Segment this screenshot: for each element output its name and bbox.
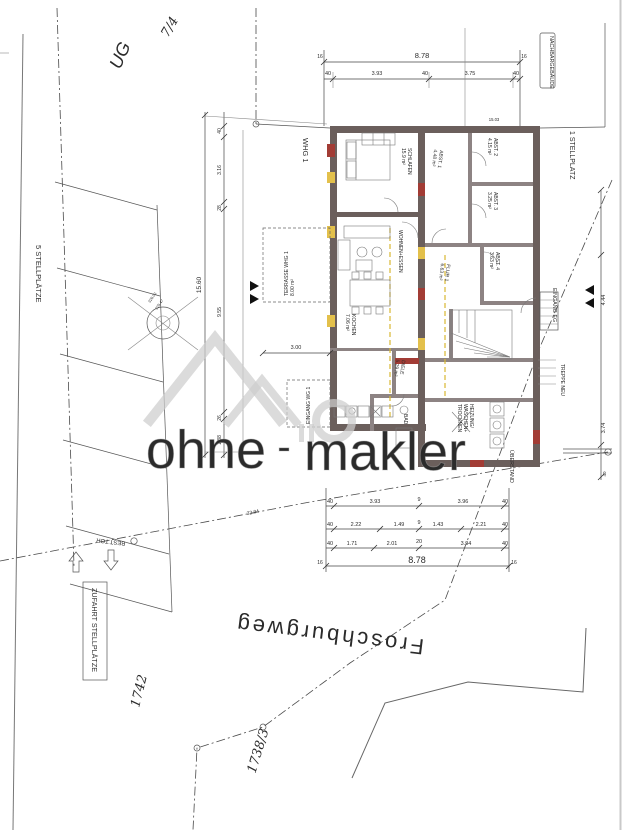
arrow-down-icon — [104, 550, 118, 570]
dim-seg: 40 — [327, 499, 333, 505]
washer — [490, 418, 504, 432]
wall-utility — [425, 398, 533, 402]
dim-seg: 4.44 — [601, 295, 607, 306]
dim-seg: 3.75 — [465, 71, 476, 77]
wall-stair-b — [425, 358, 533, 362]
wall-abst4 — [480, 247, 484, 305]
room-diele: DIELE5.29 m² — [392, 359, 406, 378]
room-flur1: FLUR 16.63 m² — [437, 263, 451, 282]
dim-end: 16 — [317, 54, 323, 60]
dim-seg: 40 — [217, 128, 223, 134]
wall-corridor — [425, 243, 533, 247]
watermark-word2: makler — [304, 422, 466, 482]
gate-arrows — [69, 550, 118, 572]
dim-seg: 3.93 — [370, 499, 381, 505]
entrance-eg-label: EINGANG EG — [551, 288, 557, 322]
dim-seg: 9 — [417, 497, 420, 503]
wall-left — [330, 126, 337, 431]
dim-seg: 1.49 — [394, 522, 405, 528]
dim-terrace-width: 3.00 — [291, 345, 302, 351]
dim-seg: 40 — [422, 71, 428, 77]
exterior-stair — [538, 360, 556, 384]
dining-table — [350, 280, 390, 306]
overhang-label: ÜBERSTAND — [508, 450, 515, 483]
watermark-word1: ohne — [146, 420, 266, 480]
dim-seg: 40 — [513, 71, 519, 77]
dim-bottom-total: 8.78 — [408, 555, 426, 565]
washer — [490, 402, 504, 416]
dim-seg: 9 — [417, 520, 420, 526]
parking-five-label: 5 STELLPLÄTZE — [34, 245, 43, 303]
door-arcs — [384, 152, 536, 406]
dim-seg: 3.74 — [601, 423, 607, 434]
dim-seg: 1.43 — [433, 522, 444, 528]
wall-note: 15.03 — [489, 117, 500, 122]
terrace-area — [263, 228, 330, 302]
parcel-1742-label: 1742 — [128, 673, 151, 709]
dim-end: 16 — [511, 560, 517, 566]
room-abst4: ABST. 43.63 m² — [488, 252, 500, 270]
dim-seg: 2.01 — [387, 541, 398, 547]
stair-new-label: TREPPE NEU — [559, 364, 565, 396]
dim-seg: 3.96 — [458, 499, 469, 505]
wall-schlafen — [330, 212, 418, 217]
dim-seg: 3.94 — [461, 541, 472, 547]
parking-stalls — [55, 182, 198, 612]
dim-seg: 3.93 — [372, 71, 383, 77]
sink — [400, 406, 408, 414]
wall-bad — [370, 394, 418, 398]
tree-symbol — [128, 297, 198, 350]
window-segments — [327, 144, 540, 467]
room-terrasse: TERRASSE WHG 18.00 m² — [284, 251, 296, 296]
neighbor-building-label: NACHBARGEBÄUDE — [548, 36, 555, 89]
dim-seg: 40 — [502, 522, 508, 528]
dim-seg: 3.16 — [217, 165, 223, 175]
room-eingang-wg: EINGANG WG 1 — [306, 387, 312, 424]
room-kochen: KOCHEN7.06 m² — [344, 314, 356, 336]
dim-seg: 2.22 — [351, 522, 362, 528]
left-boundary-line — [57, 8, 74, 566]
wall-abst — [468, 133, 472, 243]
boundary-connector — [256, 124, 330, 128]
dim-seg: 40 — [602, 471, 607, 477]
parcel-1738-label: 1738/3 — [245, 727, 273, 775]
dim-seg: 20 — [416, 539, 422, 545]
street-name: Froschburgweg — [233, 611, 425, 659]
boundary-length-label: 32.94 — [246, 509, 260, 517]
elevation-label: 326.02 — [148, 292, 158, 304]
sofa — [344, 226, 390, 238]
parcel-label: 7/4 — [158, 14, 181, 40]
wall-abst23 — [472, 182, 533, 186]
dim-seg: 28 — [217, 205, 223, 211]
building — [250, 126, 594, 467]
room-schlafen: SCHLAFEN15.9 m² — [400, 148, 412, 175]
neighbor-line — [540, 127, 605, 128]
page-edge-line — [13, 34, 23, 830]
bed — [346, 140, 390, 180]
site-plan-sheet: 7/4 UG NACHBARGEBÄUDE 1 STELLPLATZ 5 STE… — [0, 0, 625, 830]
dim-end: 16 — [317, 560, 323, 566]
dim-end: 16 — [521, 54, 527, 60]
plan-drawing: 7/4 UG NACHBARGEBÄUDE 1 STELLPLATZ 5 STE… — [0, 0, 625, 830]
floor-note-handwritten: UG — [105, 39, 134, 72]
arrow-up-icon — [69, 552, 83, 572]
wall-top — [330, 126, 540, 133]
room-abst3: ABST. 33.25 m² — [486, 192, 498, 210]
gate-point — [131, 538, 137, 544]
parking-single-label: 1 STELLPLATZ — [568, 131, 575, 180]
wall-right — [533, 126, 540, 467]
washer — [490, 434, 504, 448]
watermark-sep: - — [277, 425, 290, 469]
dim-seg: 40 — [327, 522, 333, 528]
elevation-label: 325.47 — [155, 299, 165, 311]
stair — [451, 310, 512, 359]
dim-seg: 2.21 — [476, 522, 487, 528]
room-abst1: ABST. 14.48 m² — [430, 149, 444, 169]
driveway-label: ZUFAHRT STELLPLÄTZE — [90, 588, 99, 672]
dim-seg: 40 — [325, 71, 331, 77]
wall-kueche — [330, 348, 418, 351]
unit-label: WHG 1 — [301, 138, 310, 163]
dim-seg: 40 — [502, 541, 508, 547]
dim-top-total: 8.78 — [415, 51, 430, 60]
dimension-ticks — [202, 112, 227, 458]
dim-left-total: 15.60 — [196, 276, 203, 293]
dim-seg: 9.55 — [217, 307, 223, 317]
room-wohnen: WOHNEN+ESSEN — [397, 230, 403, 273]
room-abst2: ABST. 24.15 m² — [486, 138, 498, 156]
dim-seg: 40 — [502, 499, 508, 505]
dim-seg: 1.71 — [347, 541, 358, 547]
dim-seg: 40 — [327, 541, 333, 547]
